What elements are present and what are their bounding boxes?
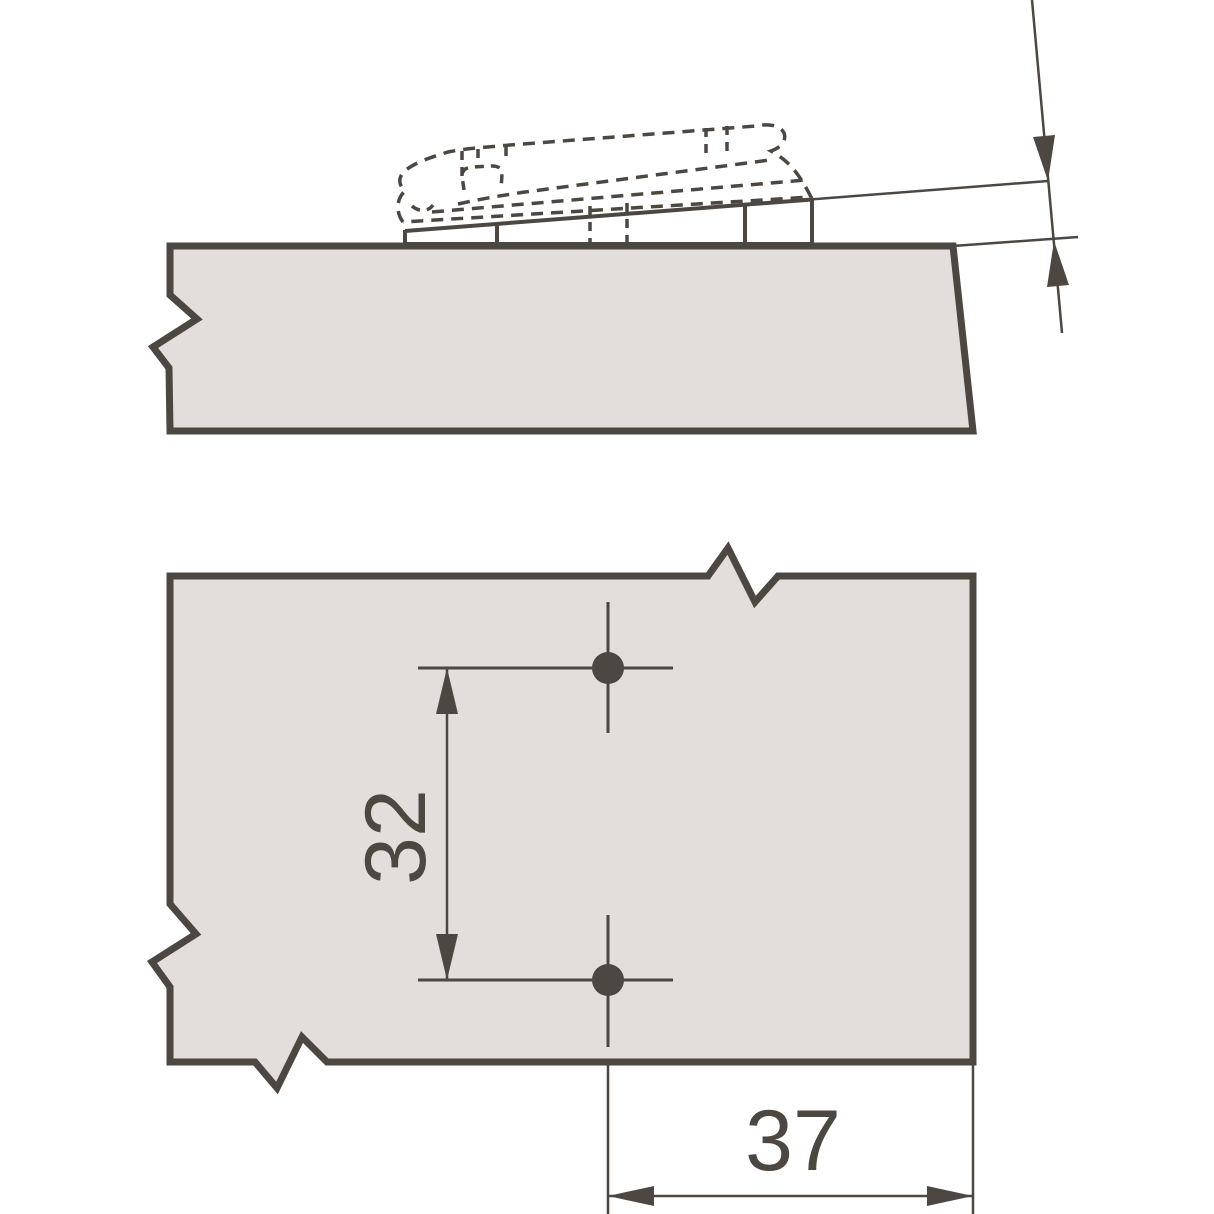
angle-dimension-arrow-down [1033,135,1055,181]
dimension-37-label: 37 [745,1093,841,1189]
wedge-top-edge [405,200,812,232]
side-view [153,0,1078,431]
technical-drawing: 32 37 [0,0,1214,1214]
plan-view: 32 37 [152,548,973,1214]
plan-view-panel [152,548,973,1088]
top-hole [592,652,624,684]
side-view-panel [153,246,973,431]
wedge-spacer [405,181,1048,246]
angle-dimension [953,0,1078,333]
plate-outer-outline [398,125,811,222]
dimension-37-arrow-left [608,1186,654,1206]
plate-left-curl [412,205,433,210]
dimension-37: 37 [608,1062,973,1214]
dimension-32-label: 32 [348,789,444,885]
drawing-canvas: 32 37 [0,0,1214,1214]
bottom-hole [592,964,624,996]
dimension-37-arrow-right [927,1186,973,1206]
panel-corner-extension-line [953,237,1078,246]
angle-dimension-arrow-up [1047,241,1069,287]
plate-screw-cavity [462,166,502,190]
